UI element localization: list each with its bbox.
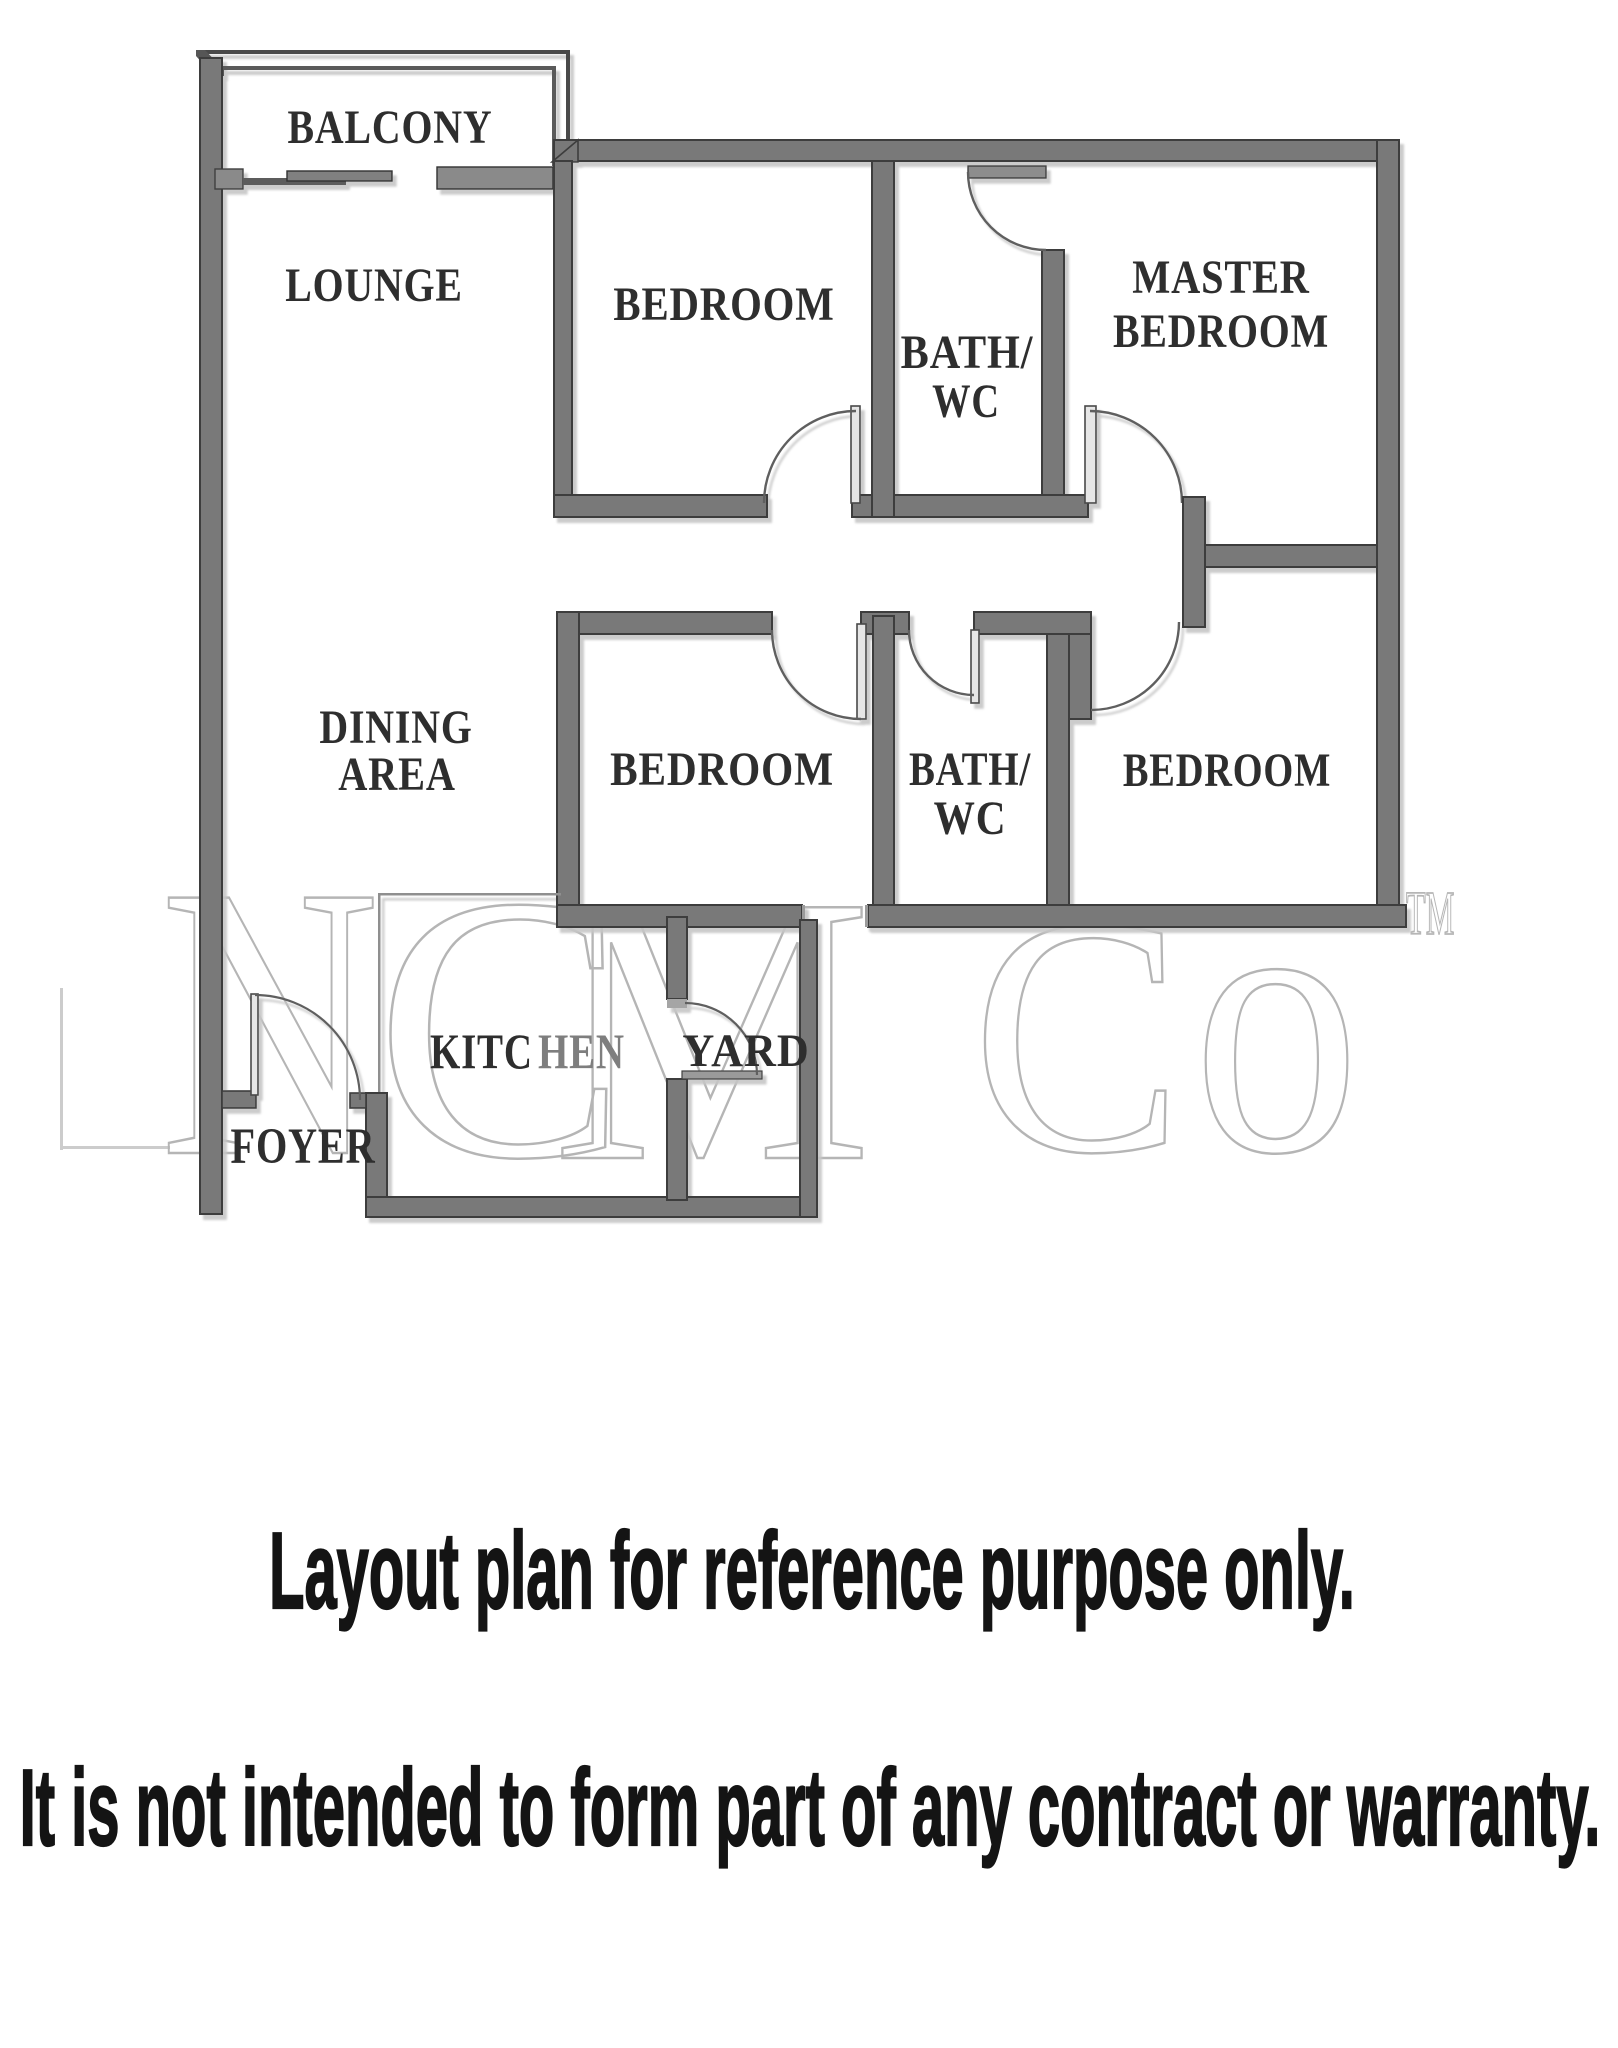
svg-text:o: o (1193, 808, 1360, 1234)
svg-text:BEDROOM: BEDROOM (610, 742, 834, 796)
svg-text:BALCONY: BALCONY (288, 101, 493, 154)
svg-text:BEDROOM: BEDROOM (613, 277, 834, 331)
svg-text:Layout plan for reference purp: Layout plan for reference purpose only. (269, 1511, 1355, 1632)
svg-text:LOUNGE: LOUNGE (285, 259, 463, 312)
svg-text:It is not intended to form par: It is not intended to form part of any c… (20, 1746, 1601, 1868)
svg-text:BATH/: BATH/ (909, 743, 1031, 796)
svg-text:WC: WC (932, 375, 1000, 428)
svg-text:AREA: AREA (338, 748, 456, 801)
svg-text:DINING: DINING (319, 701, 472, 754)
svg-text:KITC: KITC (430, 1023, 533, 1079)
svg-text:TM: TM (1406, 879, 1454, 948)
svg-text:MASTER: MASTER (1132, 251, 1310, 304)
svg-text:HEN: HEN (538, 1023, 625, 1079)
svg-text:BEDROOM: BEDROOM (1123, 744, 1331, 797)
svg-text:BEDROOM: BEDROOM (1113, 305, 1329, 358)
svg-text:WC: WC (934, 791, 1007, 845)
svg-text:FOYER: FOYER (231, 1118, 376, 1175)
svg-text:BATH/: BATH/ (901, 326, 1034, 379)
svg-text:YARD: YARD (682, 1024, 809, 1077)
